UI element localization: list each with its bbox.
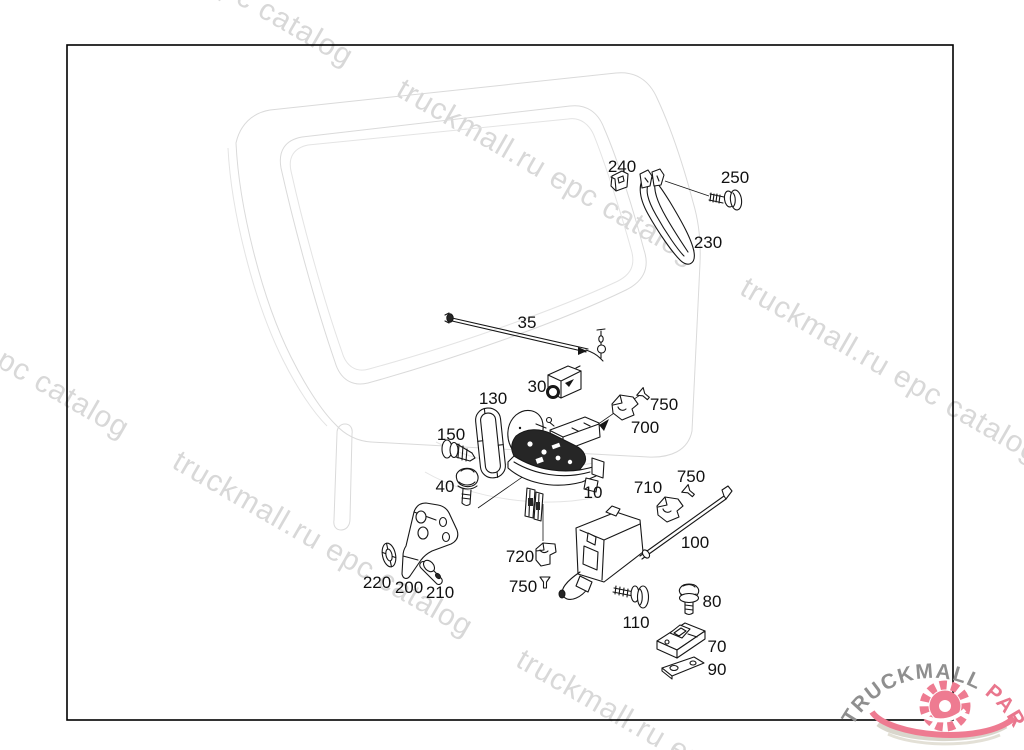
part-label-35: 35 [518, 313, 537, 332]
gear-icon [924, 685, 966, 727]
part-label-210: 210 [426, 583, 454, 602]
part-label-30: 30 [528, 377, 547, 396]
part-label-200: 200 [395, 578, 423, 597]
pin-750-b [682, 485, 697, 500]
part-label-750-a: 750 [650, 395, 678, 414]
exploded-parts-diagram: 240 250 230 35 30 130 750 700 150 40 10 … [0, 0, 1024, 750]
part-720-clip [536, 543, 556, 566]
part-700-clip [612, 395, 638, 420]
part-80-bolt [679, 584, 698, 615]
part-90-shim [662, 657, 704, 679]
part-220-grommet [380, 542, 398, 568]
part-label-750-b: 750 [677, 467, 705, 486]
axis-arrow [599, 419, 609, 431]
part-label-80: 80 [703, 592, 722, 611]
logo-suffix-text: PARTS [0, 0, 1024, 732]
part-label-220: 220 [363, 573, 391, 592]
part-70-striker-plate [657, 623, 705, 658]
part-label-130: 130 [479, 389, 507, 408]
part-30-actuator [548, 366, 582, 398]
part-label-710: 710 [634, 478, 662, 497]
leader-230-to-250 [665, 181, 709, 196]
part-label-90: 90 [708, 660, 727, 679]
door-outline [228, 73, 700, 530]
part-710-clip [657, 497, 683, 522]
part-130-gasket [474, 407, 506, 479]
logo-arc-text: TRUCKMALL PARTS [0, 0, 1024, 732]
part-110-bolt [613, 586, 649, 608]
diagram-border [67, 45, 953, 720]
part-10-door-lock [508, 410, 604, 521]
parts-catalog-page: truckmall.ru epc catalogtruckmall.ru epc… [0, 0, 1024, 750]
part-label-100: 100 [681, 533, 709, 552]
part-label-110: 110 [622, 613, 649, 632]
part-label-750-c: 750 [509, 577, 537, 596]
part-label-250: 250 [721, 168, 749, 187]
part-40-bolt [456, 468, 478, 505]
part-label-150: 150 [437, 425, 465, 444]
part-label-240: 240 [608, 157, 636, 176]
part-250-screw [709, 189, 743, 210]
part-label-70: 70 [708, 637, 727, 656]
pin-750-c [540, 577, 550, 588]
part-label-700: 700 [631, 418, 659, 437]
part-label-10: 10 [584, 483, 603, 502]
truckmallparts-logo: TRUCKMALL PARTS [0, 0, 1024, 744]
part-label-720: 720 [506, 547, 534, 566]
part-label-230: 230 [694, 233, 722, 252]
part-label-40: 40 [436, 477, 455, 496]
part-230-check-strap [640, 169, 694, 264]
